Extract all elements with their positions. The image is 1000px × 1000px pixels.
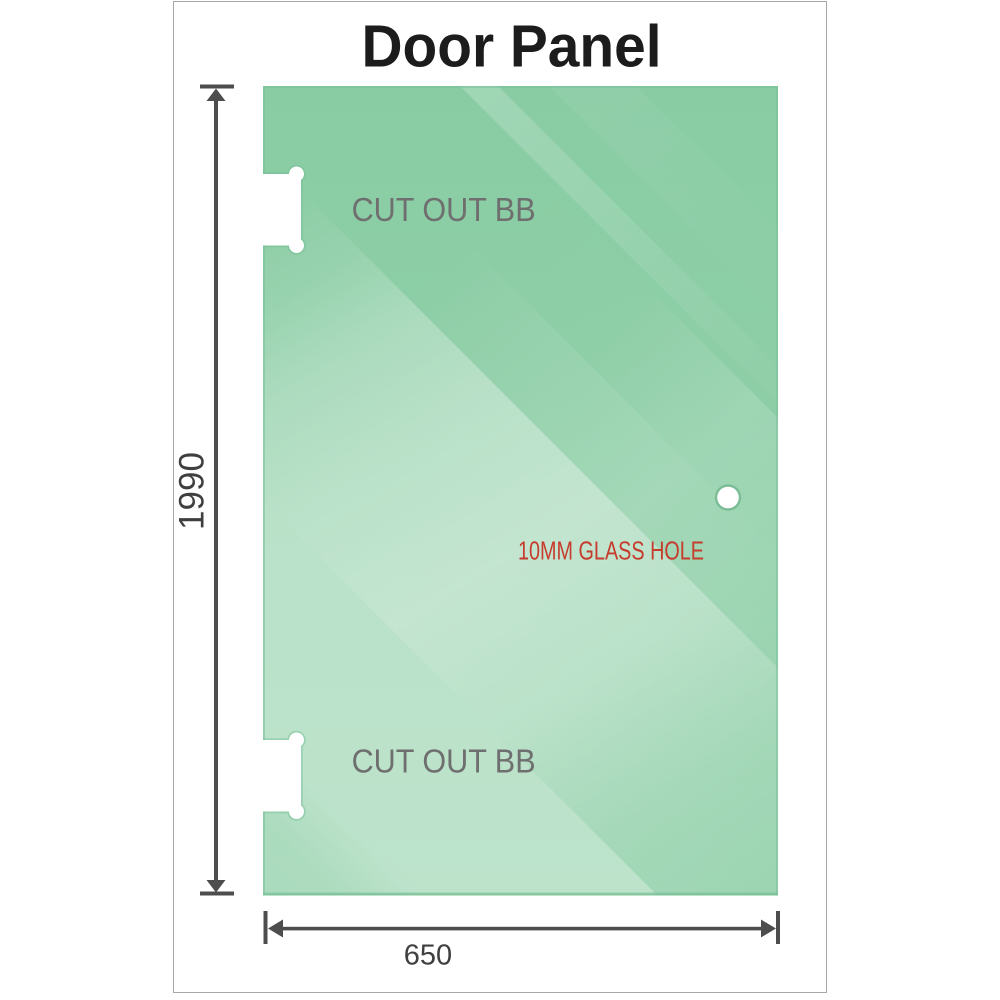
svg-text:1990: 1990 — [173, 452, 212, 530]
svg-text:Door Panel: Door Panel — [362, 14, 662, 80]
svg-text:CUT OUT BB: CUT OUT BB — [352, 191, 536, 228]
svg-text:10MM GLASS HOLE: 10MM GLASS HOLE — [518, 535, 704, 565]
svg-text:650: 650 — [404, 940, 452, 972]
svg-text:CUT OUT BB: CUT OUT BB — [352, 743, 536, 780]
